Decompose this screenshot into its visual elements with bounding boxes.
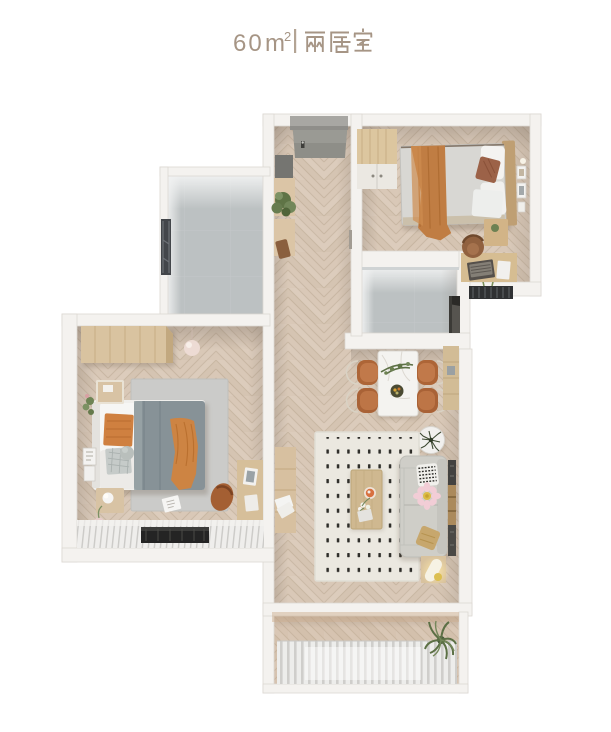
svg-text:m: m xyxy=(265,30,285,57)
svg-text:60: 60 xyxy=(233,30,264,57)
svg-text:2: 2 xyxy=(284,29,291,44)
